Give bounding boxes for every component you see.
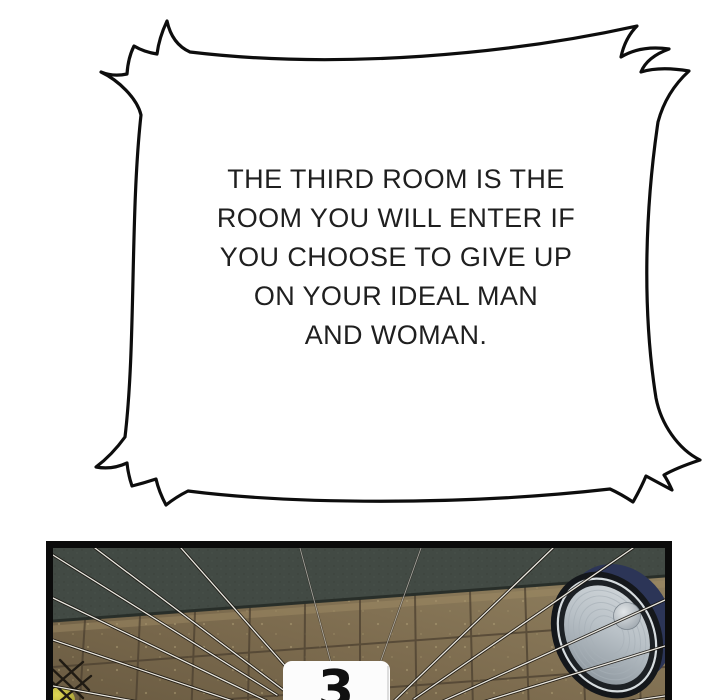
room-number-sign: 3 [283,660,390,700]
dialogue-line: YOU CHOOSE TO GIVE UP [168,238,624,277]
dialogue-line: ROOM YOU WILL ENTER IF [168,199,624,238]
panel-art: 3 [53,548,665,700]
comic-page: THE THIRD ROOM IS THE ROOM YOU WILL ENTE… [0,0,720,700]
sign-number: 3 [318,660,354,700]
dialogue-line: THE THIRD ROOM IS THE [168,160,624,199]
dialogue-text: THE THIRD ROOM IS THE ROOM YOU WILL ENTE… [168,160,624,355]
dialogue-line: ON YOUR IDEAL MAN [168,277,624,316]
comic-panel: 3 [46,541,672,700]
dialogue-line: AND WOMAN. [168,316,624,355]
